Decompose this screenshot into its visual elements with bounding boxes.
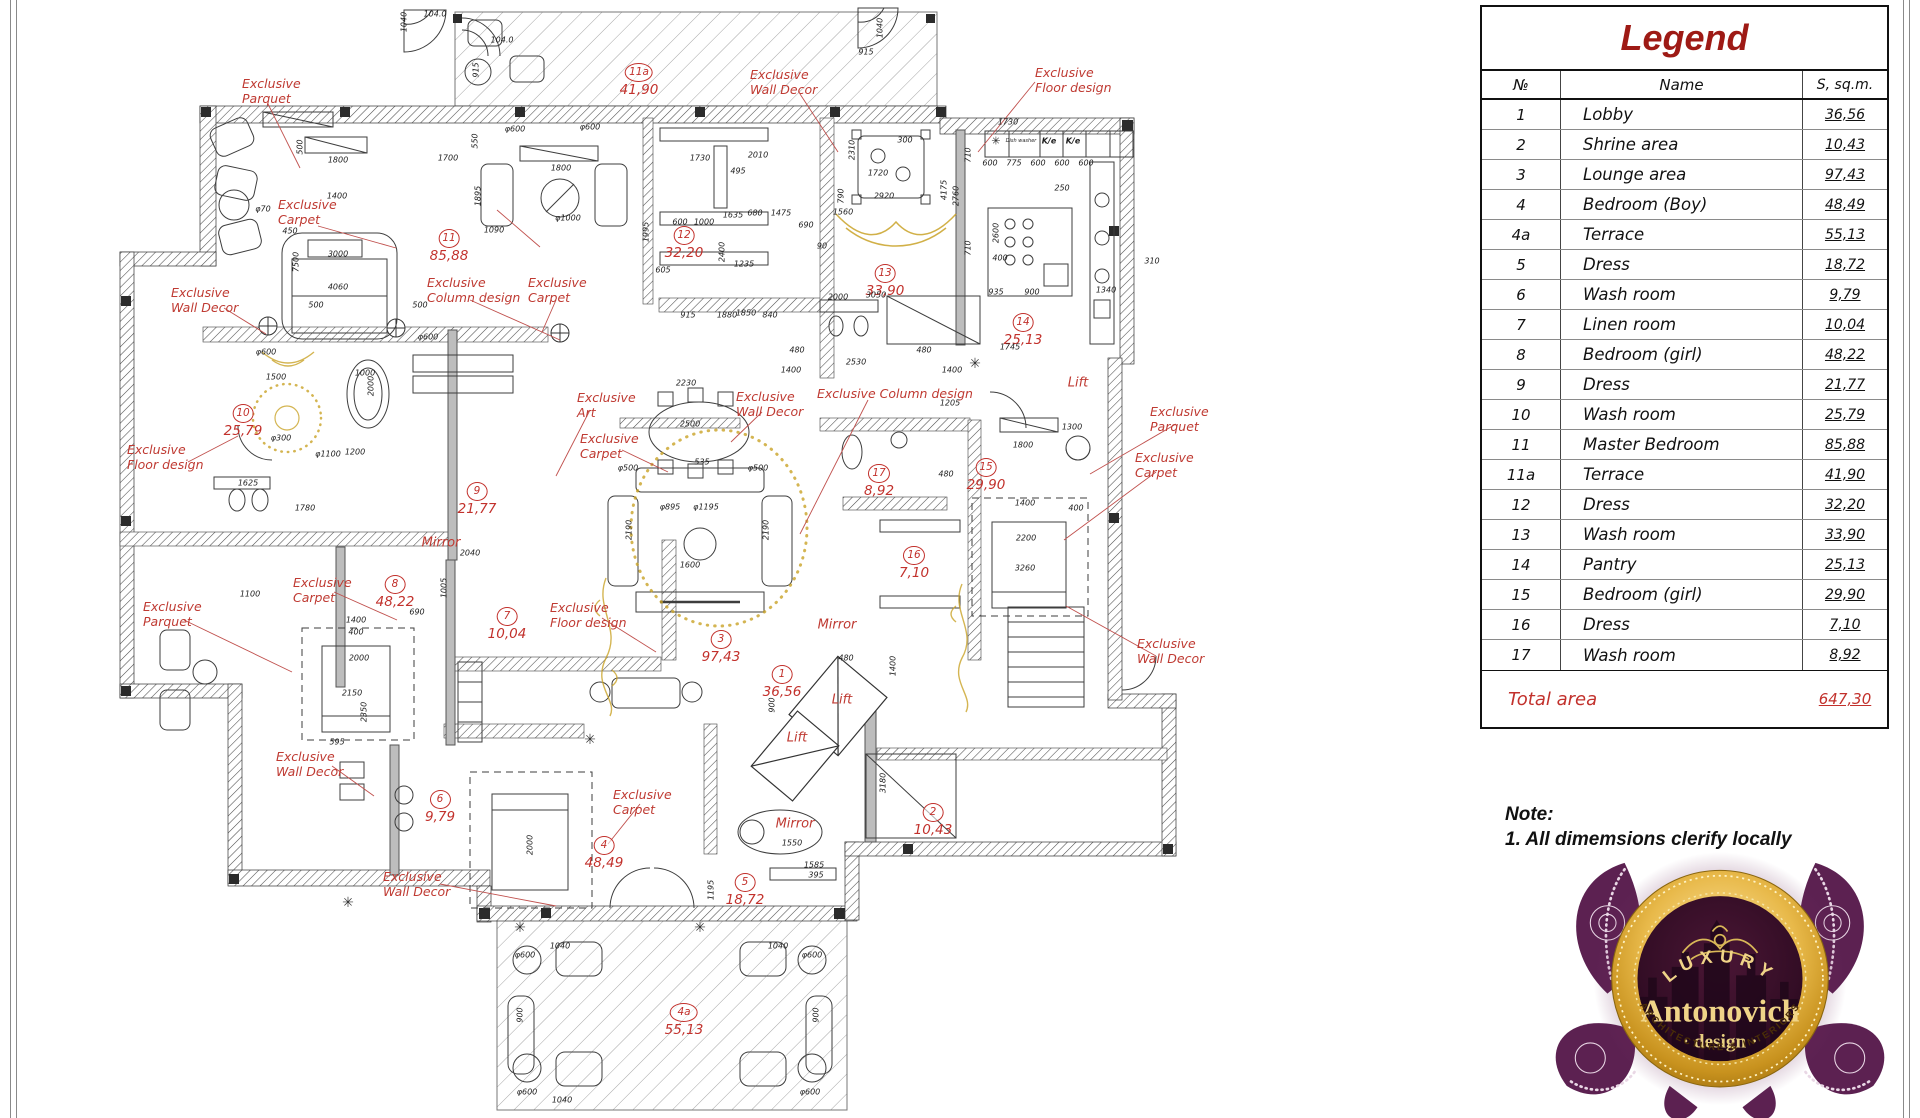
dimension-label: 550 xyxy=(471,133,480,148)
room-number: 14 xyxy=(1012,313,1033,332)
dimension-label: 2010 xyxy=(748,151,768,160)
dimension-label: φ500 xyxy=(618,464,639,473)
room-area: 41,90 xyxy=(620,82,659,98)
legend-row: 13Wash room33,90 xyxy=(1482,520,1887,550)
dimension-label: 1720 xyxy=(868,169,888,178)
room-badge: 1185,88 xyxy=(430,226,469,264)
plan-text: Lift xyxy=(787,731,808,746)
legend-row: 10Wash room25,79 xyxy=(1482,400,1887,430)
dimension-label: 690 xyxy=(798,221,813,230)
drawing-sheet: { "legend": { "title": "Legend", "column… xyxy=(0,0,1920,1118)
dimension-label: 480 xyxy=(938,470,953,479)
flower-symbol: ✳ xyxy=(514,920,526,936)
dimension-label: 790 xyxy=(837,188,846,203)
dimension-label: 1995 xyxy=(642,222,651,242)
dimension-label: 2150 xyxy=(342,689,362,698)
room-badge: 518,72 xyxy=(726,870,765,908)
dimension-label: 2190 xyxy=(762,520,771,540)
dimension-label: 1040 xyxy=(550,942,570,951)
dimension-label: φ600 xyxy=(580,123,601,132)
annotation-label: ExclusiveParquet xyxy=(143,600,202,629)
room-number: 10 xyxy=(232,404,253,423)
dimension-label: 2190 xyxy=(625,520,634,540)
dimension-label: 840 xyxy=(762,311,777,320)
dimension-label: 1560 xyxy=(833,208,853,217)
dimension-label: 1040 xyxy=(400,12,409,32)
dimension-label: 1550 xyxy=(782,839,802,848)
room-number: 11 xyxy=(438,229,459,248)
dimension-label: 690 xyxy=(409,608,424,617)
dimension-label: 775 xyxy=(1006,159,1021,168)
dimension-label: 600 xyxy=(982,159,997,168)
room-area: 29,90 xyxy=(967,477,1006,493)
dimension-label: 1040 xyxy=(876,18,885,38)
dimension-label: 1895 xyxy=(474,186,483,206)
dimension-label: 1040 xyxy=(768,942,788,951)
dimension-label: 2000 xyxy=(526,835,535,855)
dimension-label: 605 xyxy=(655,266,670,275)
dimension-label: 395 xyxy=(808,871,823,880)
flower-symbol: ✳ xyxy=(969,356,981,372)
dimension-label: 1400 xyxy=(942,366,962,375)
dimension-label: φ1195 xyxy=(693,503,719,512)
dimension-label: 680 xyxy=(747,209,762,218)
dimension-label: 1200 xyxy=(345,448,365,457)
dimension-label: 1800 xyxy=(1013,441,1033,450)
dimension-label: K/e xyxy=(1066,137,1081,146)
room-area: 7,10 xyxy=(899,565,929,581)
dimension-label: 1400 xyxy=(781,366,801,375)
room-number: 12 xyxy=(673,226,694,245)
dimension-label: 1400 xyxy=(889,656,898,676)
dimension-label: 1730 xyxy=(690,154,710,163)
dimension-label: 600 xyxy=(1078,159,1093,168)
dimension-label: 300 xyxy=(897,136,912,145)
legend-col-name: Name xyxy=(1561,71,1803,98)
dimension-label: 595 xyxy=(329,738,344,747)
flower-symbol: ✳ xyxy=(584,732,596,748)
dimension-label: 2000 xyxy=(367,376,376,396)
dimension-label: 1730 xyxy=(998,118,1018,127)
room-area: 85,88 xyxy=(430,248,469,264)
room-area: 8,92 xyxy=(864,483,894,499)
dimension-label: 3050 xyxy=(866,291,886,300)
room-badge: 178,92 xyxy=(864,461,894,499)
annotation-label: ExclusiveColumn design xyxy=(427,276,520,305)
room-badge: 1025,79 xyxy=(224,401,263,439)
dimension-label: 2200 xyxy=(1016,534,1036,543)
annotation-label: ExclusiveCarpet xyxy=(1135,451,1194,480)
dimension-label: 250 xyxy=(1054,184,1069,193)
dimension-label: 104.0 xyxy=(424,10,447,19)
dimension-label: φ70 xyxy=(255,205,270,214)
room-area: 10,43 xyxy=(914,822,953,838)
room-area: 18,72 xyxy=(726,892,765,908)
plan-text: Mirror xyxy=(818,618,857,633)
dimension-label: 900 xyxy=(1024,288,1039,297)
annotation-label: ExclusiveCarpet xyxy=(528,276,587,305)
legend-row: 16Dress7,10 xyxy=(1482,610,1887,640)
dimension-label: 3000 xyxy=(328,250,348,259)
dimension-label: 1300 xyxy=(1062,423,1082,432)
dimension-label: 900 xyxy=(812,1007,821,1022)
room-number: 17 xyxy=(868,464,889,483)
dimension-label: φ500 xyxy=(748,464,769,473)
room-number: 7 xyxy=(497,607,518,626)
dimension-label: 104.0 xyxy=(491,36,514,45)
room-badge: 1529,90 xyxy=(967,455,1006,493)
dimension-label: 2600 xyxy=(992,223,1001,243)
legend-row: 2Shrine area10,43 xyxy=(1482,130,1887,160)
dimension-label: 1780 xyxy=(295,504,315,513)
dimension-label: 400 xyxy=(992,254,1007,263)
room-number: 5 xyxy=(735,873,756,892)
room-number: 16 xyxy=(903,546,924,565)
dimension-label: φ300 xyxy=(271,434,292,443)
plan-text: Lift xyxy=(1068,376,1089,391)
room-badge: 1232,20 xyxy=(665,223,704,261)
company-logo: LUXURY Antonovich · design · ARCHITECTUR… xyxy=(1540,820,1900,1118)
room-area: 9,79 xyxy=(425,809,455,825)
dimension-label: 1000 xyxy=(694,218,714,227)
dimension-label: 500 xyxy=(412,301,427,310)
dimension-label: φ600 xyxy=(800,1088,821,1097)
dimension-label: 2400 xyxy=(718,242,727,262)
plan-text: Mirror xyxy=(776,817,815,832)
flower-symbol: ✳ xyxy=(694,920,706,936)
dimension-label: 480 xyxy=(916,346,931,355)
dimension-label: 710 xyxy=(964,240,973,255)
plan-text: Mirror xyxy=(422,536,461,551)
dimension-label: φ1000 xyxy=(555,214,581,223)
dimension-label: 2530 xyxy=(846,358,866,367)
room-number: 8 xyxy=(385,575,406,594)
dimension-label: 2500 xyxy=(680,420,700,429)
legend-row: 7Linen room10,04 xyxy=(1482,310,1887,340)
room-area: 48,49 xyxy=(585,855,624,871)
dimension-label: 2920 xyxy=(874,192,894,201)
legend-row: 1Lobby36,56 xyxy=(1482,100,1887,130)
legend-total-row: Total area 647,30 xyxy=(1482,670,1887,727)
room-badge: 210,43 xyxy=(914,800,953,838)
dimension-label: 1340 xyxy=(1096,286,1116,295)
legend-row: 15Bedroom (girl)29,90 xyxy=(1482,580,1887,610)
annotation-label: ExclusiveWall Decor xyxy=(171,286,238,315)
annotation-label: ExclusiveFloor design xyxy=(127,443,204,472)
dimension-label: Dish washer xyxy=(1006,138,1037,144)
room-number: 13 xyxy=(874,264,895,283)
room-area: 55,13 xyxy=(665,1022,704,1038)
dimension-label: 1090 xyxy=(484,226,504,235)
dimension-label: φ895 xyxy=(660,503,681,512)
dimension-label: 600 xyxy=(1030,159,1045,168)
dimension-label: φ600 xyxy=(517,1088,538,1097)
dimension-label: 900 xyxy=(768,697,777,712)
dimension-label: 1235 xyxy=(734,260,754,269)
dimension-label: 3260 xyxy=(1015,564,1035,573)
dimension-label: 7500 xyxy=(292,252,301,272)
room-badge: 167,10 xyxy=(899,543,929,581)
dimension-label: 480 xyxy=(838,654,853,663)
room-number: 9 xyxy=(467,482,488,501)
dimension-label: 1800 xyxy=(328,156,348,165)
room-number: 4 xyxy=(594,836,615,855)
dimension-label: 535 xyxy=(694,458,709,467)
dimension-label: 1475 xyxy=(771,209,791,218)
legend-col-num: № xyxy=(1482,71,1561,98)
dimension-label: 1040 xyxy=(552,1096,572,1105)
dimension-label: 2000 xyxy=(349,654,369,663)
annotation-label: ExclusiveWall Decor xyxy=(1137,637,1204,666)
annotation-label: ExclusiveWall Decor xyxy=(276,750,343,779)
dimension-label: 1205 xyxy=(940,399,960,408)
dimension-label: 1700 xyxy=(438,154,458,163)
legend-total-value: 647,30 xyxy=(1803,690,1887,708)
dimension-label: 1500 xyxy=(266,373,286,382)
dimension-label: 915 xyxy=(680,311,695,320)
legend-row: 11Master Bedroom85,88 xyxy=(1482,430,1887,460)
dimension-label: 915 xyxy=(472,62,481,77)
dimension-label: 400 xyxy=(1068,504,1083,513)
room-badge: 4a55,13 xyxy=(665,1000,704,1038)
dimension-label: φ600 xyxy=(515,951,536,960)
room-badge: 921,77 xyxy=(458,479,497,517)
legend-row: 4aTerrace55,13 xyxy=(1482,220,1887,250)
room-number: 2 xyxy=(923,803,944,822)
dimension-label: 500 xyxy=(296,139,305,154)
dimension-label: ✳ xyxy=(991,135,1000,148)
legend-row: 11aTerrace41,90 xyxy=(1482,460,1887,490)
dimension-label: 1800 xyxy=(551,164,571,173)
dimension-label: φ600 xyxy=(802,951,823,960)
legend-row: 5Dress18,72 xyxy=(1482,250,1887,280)
dimension-label: 710 xyxy=(964,147,973,162)
annotation-label: ExclusiveCarpet xyxy=(293,576,352,605)
dimension-label: 1585 xyxy=(804,861,824,870)
dimension-label: 900 xyxy=(516,1007,525,1022)
dimension-label: 1635 xyxy=(723,211,743,220)
dimension-label: 90 xyxy=(817,242,827,251)
legend-title: Legend xyxy=(1482,7,1887,71)
legend-row: 4Bedroom (Boy)48,49 xyxy=(1482,190,1887,220)
legend-row: 12Dress32,20 xyxy=(1482,490,1887,520)
annotation-label: ExclusiveWall Decor xyxy=(736,390,803,419)
room-area: 21,77 xyxy=(458,501,497,517)
room-number: 11a xyxy=(625,63,653,82)
dimension-label: 2350 xyxy=(360,702,369,722)
room-number: 1 xyxy=(772,665,793,684)
legend-row: 3Lounge area97,43 xyxy=(1482,160,1887,190)
legend-col-area: S, sq.m. xyxy=(1803,71,1887,98)
dimension-label: 1195 xyxy=(707,880,716,900)
annotation-label: ExclusiveCarpet xyxy=(580,432,639,461)
annotation-label: ExclusiveParquet xyxy=(1150,405,1209,434)
dimension-label: φ600 xyxy=(418,333,439,342)
dimension-label: 2760 xyxy=(952,186,961,206)
annotation-label: ExclusiveArt xyxy=(577,391,636,420)
annotation-label: ExclusiveCarpet xyxy=(613,788,672,817)
dimension-label: 1100 xyxy=(240,590,260,599)
dimension-label: 1005 xyxy=(440,578,449,598)
room-badge: 848,22 xyxy=(376,572,415,610)
annotation-label: ExclusiveWall Decor xyxy=(383,870,450,899)
legend-row: 6Wash room9,79 xyxy=(1482,280,1887,310)
room-badge: 69,79 xyxy=(425,787,455,825)
dimension-label: 3180 xyxy=(879,773,888,793)
legend-table: Legend № Name S, sq.m. 1Lobby36,562Shrin… xyxy=(1480,5,1889,729)
legend-row: 9Dress21,77 xyxy=(1482,370,1887,400)
room-number: 15 xyxy=(975,458,996,477)
room-number: 4a xyxy=(670,1003,698,1022)
dimension-label: K/e xyxy=(1042,137,1057,146)
legend-total-label: Total area xyxy=(1482,689,1803,710)
dimension-label: φ600 xyxy=(256,348,277,357)
annotation-label: ExclusiveFloor design xyxy=(1035,66,1112,95)
legend-row: 14Pantry25,13 xyxy=(1482,550,1887,580)
room-badge: 710,04 xyxy=(488,604,527,642)
dimension-label: 2310 xyxy=(848,140,857,160)
dimension-label: 1850 xyxy=(736,309,756,318)
dimension-label: φ600 xyxy=(505,125,526,134)
dimension-label: 1400 xyxy=(1015,499,1035,508)
dimension-label: 600 xyxy=(1054,159,1069,168)
room-number: 3 xyxy=(711,630,732,649)
dimension-label: 1400 xyxy=(346,616,366,625)
dimension-label: 480 xyxy=(789,346,804,355)
dimension-label: 500 xyxy=(308,301,323,310)
dimension-label: 935 xyxy=(988,288,1003,297)
dimension-label: 495 xyxy=(730,167,745,176)
room-badge: 11a41,90 xyxy=(620,60,659,98)
room-badge: 448,49 xyxy=(585,833,624,871)
dimension-label: 2040 xyxy=(460,549,480,558)
annotation-label: ExclusiveFloor design xyxy=(550,601,627,630)
room-area: 32,20 xyxy=(665,245,704,261)
dimension-label: 400 xyxy=(348,628,363,637)
dimension-label: 2000 xyxy=(828,293,848,302)
dimension-label: 1745 xyxy=(1000,343,1020,352)
room-area: 10,04 xyxy=(488,626,527,642)
room-area: 25,79 xyxy=(224,423,263,439)
dimension-label: 1400 xyxy=(327,192,347,201)
legend-row: 17Wash room8,92 xyxy=(1482,640,1887,670)
room-badge: 397,43 xyxy=(702,627,741,665)
dimension-label: 1625 xyxy=(238,479,258,488)
dimension-label: 1880 xyxy=(717,311,737,320)
flower-symbol: ✳ xyxy=(342,895,354,911)
room-number: 6 xyxy=(430,790,451,809)
dimension-label: 450 xyxy=(282,227,297,236)
annotation-label: ExclusiveCarpet xyxy=(278,198,337,227)
dimension-label: 4175 xyxy=(940,180,949,200)
dimension-label: 310 xyxy=(1144,257,1159,266)
plan-text: Lift xyxy=(832,693,853,708)
legend-header: № Name S, sq.m. xyxy=(1482,71,1887,100)
dimension-label: 915 xyxy=(858,48,873,57)
dimension-label: 600 xyxy=(672,218,687,227)
dimension-label: 1600 xyxy=(680,561,700,570)
legend-row: 8Bedroom (girl)48,22 xyxy=(1482,340,1887,370)
dimension-label: 4060 xyxy=(328,283,348,292)
room-area: 97,43 xyxy=(702,649,741,665)
room-badge: 136,56 xyxy=(763,662,802,700)
legend-body: 1Lobby36,562Shrine area10,433Lounge area… xyxy=(1482,100,1887,670)
dimension-label: 2230 xyxy=(676,379,696,388)
dimension-label: φ1100 xyxy=(315,450,341,459)
annotation-label: ExclusiveParquet xyxy=(242,77,301,106)
annotation-label: ExclusiveWall Decor xyxy=(750,68,817,97)
